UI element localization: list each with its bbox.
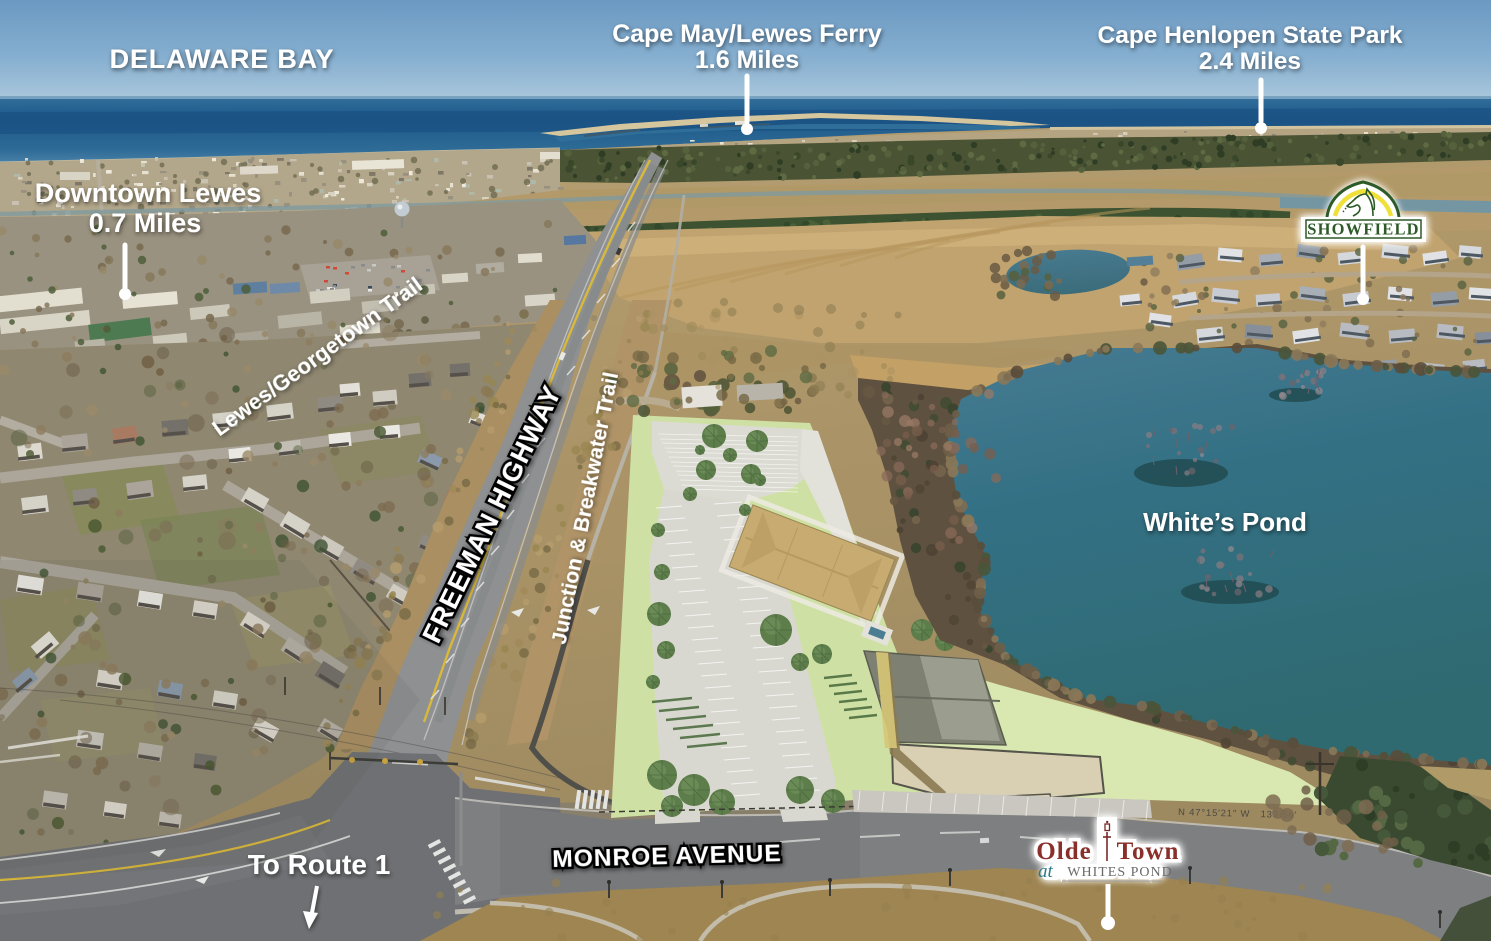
svg-text:at: at: [1038, 861, 1054, 882]
svg-text:To Route 1: To Route 1: [248, 849, 391, 880]
svg-text:Cape May/Lewes Ferry: Cape May/Lewes Ferry: [612, 20, 882, 48]
svg-text:Cape Henlopen State Park: Cape Henlopen State Park: [1098, 22, 1403, 49]
svg-text:SHOWFIELD: SHOWFIELD: [1307, 220, 1420, 239]
svg-text:0.7 Miles: 0.7 Miles: [89, 208, 202, 238]
svg-text:DELAWARE BAY: DELAWARE BAY: [110, 44, 335, 74]
svg-text:White’s Pond: White’s Pond: [1143, 507, 1307, 537]
svg-text:2.4 Miles: 2.4 Miles: [1199, 48, 1301, 75]
svg-text:WHITES POND: WHITES POND: [1067, 865, 1173, 880]
svg-text:1.6 Miles: 1.6 Miles: [695, 46, 799, 74]
svg-text:Downtown Lewes: Downtown Lewes: [35, 178, 262, 208]
svg-text:Town: Town: [1117, 838, 1180, 865]
